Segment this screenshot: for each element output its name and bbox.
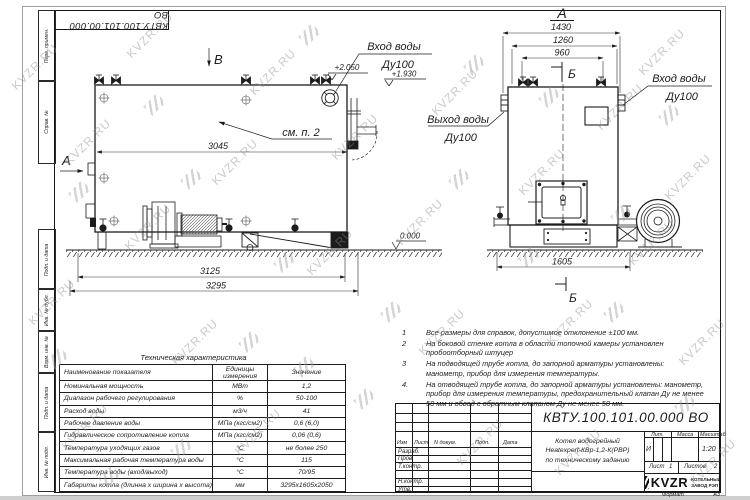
title-block: Изм Лист N докум. Подп. Дата Разраб. Про… [395, 403, 720, 492]
tech-table-header: Наименование показателя Единицы измерени… [60, 365, 346, 381]
note-item: 3 На подводящей трубе котла, до запорной… [402, 359, 704, 378]
grid-line [662, 437, 663, 461]
mass-label: Масса [677, 432, 693, 438]
grid-line [698, 431, 699, 461]
grid-line [678, 461, 679, 473]
sheets-value: 2 [714, 464, 717, 470]
grid-line [396, 486, 531, 487]
company-name: КОТЕЛЬНЫЙ ЗАВОД РЭП [691, 477, 721, 488]
tech-characteristics: Техническая характеристика Наименование … [59, 353, 328, 492]
grid-line [396, 413, 531, 414]
dim-1260: 1260 [553, 35, 573, 45]
company-logo: KVZR КОТЕЛЬНЫЙ ЗАВОД РЭП [645, 473, 721, 492]
grid-line [396, 455, 531, 456]
dim-1430: 1430 [551, 22, 571, 32]
inlet-nozzle-flange [322, 90, 338, 106]
pump-assembly [98, 202, 227, 249]
view-label-v: В [214, 52, 223, 67]
col-docnum: N докум. [434, 440, 456, 446]
sheet-value: 1 [669, 464, 672, 470]
grid-line [531, 471, 644, 472]
inlet-dn-right-view: Ду100 [664, 91, 699, 103]
dim-3295: 3295 [206, 281, 227, 291]
outlet-dn: Ду100 [443, 132, 478, 144]
scale-value: 1:20 [702, 446, 716, 453]
furnace-door [528, 181, 587, 224]
table-row: Расход водым3/ч41 [60, 405, 346, 417]
inspection-hatch [585, 107, 608, 125]
dim-3125: 3125 [200, 266, 221, 276]
tech-table: Наименование показателя Единицы измерени… [59, 364, 346, 492]
col-list: Лист [414, 440, 428, 446]
row-tkontr: Т.контр. [398, 464, 422, 470]
grid-line [498, 404, 499, 493]
row-nkontr: Н.контр. [398, 479, 423, 485]
table-row: Температура уходящих газов°Сне более 250 [60, 442, 346, 454]
row-razrab: Разраб. [398, 449, 420, 455]
inlet-label-right-view: Вход воды [652, 73, 705, 85]
skid-supports [242, 232, 348, 251]
grid-line [428, 404, 429, 493]
end-view [487, 77, 703, 257]
lit-value: И [646, 446, 651, 453]
elev-2050: +2.050 [335, 63, 360, 72]
notes-list: 1 Все размеры для справок, допустимое от… [402, 328, 704, 410]
kvzr-stripes-icon [645, 476, 649, 489]
kvzr-logo-text: KVZR [651, 475, 688, 490]
elev-1930: +1.930 [392, 70, 417, 79]
view-label-a-right: А [556, 5, 566, 21]
blower-duct [618, 206, 637, 241]
lit-label: Лит. [651, 432, 664, 438]
drawing-labels: 3045 3125 3295 В А см. п. 2 Вход воды Ду… [61, 5, 706, 305]
row-utv: Утв. [398, 487, 412, 493]
grid-line [470, 404, 471, 493]
scale-label: Масштаб [700, 432, 726, 438]
table-row: Температура воды (вход/выход)°С70/95 [60, 467, 346, 479]
grid-line [653, 437, 654, 461]
table-row: Номинальная мощностьМВт1,2 [60, 381, 346, 393]
section-label-a-left: А [61, 153, 71, 168]
col-izm: Изм [397, 440, 407, 446]
boiler-base [510, 225, 617, 247]
axis-label-b-top: Б [568, 67, 576, 81]
row-prov: Пров. [398, 456, 414, 462]
elev-0000: 0.000 [400, 232, 421, 241]
axis-label-b-bottom: Б [569, 291, 577, 305]
dim-3045: 3045 [208, 141, 229, 151]
drawing-sheet: Перв. примен. Справ. № Подп. и дата Инв.… [0, 0, 750, 500]
side-piping [347, 98, 377, 160]
sheet-label: Лист [649, 464, 664, 470]
tech-table-title: Техническая характеристика [59, 353, 328, 362]
note-item: 1 Все размеры для справок, допустимое от… [402, 328, 704, 337]
product-name: Котел водогрейный Heatexpert-КВр-1,2-К(Р… [531, 431, 644, 471]
table-row: Гидравлическое сопротивление котлаМПа (к… [60, 430, 346, 442]
note-ref-label: см. п. 2 [282, 127, 319, 139]
table-row: Максимальная рабочая температура воды°С1… [60, 454, 346, 466]
table-row: Диапазон рабочего регулирования%50-100 [60, 393, 346, 405]
outlet-label: Выход воды [427, 114, 489, 126]
inlet-label-left-view: Вход воды [367, 41, 420, 53]
sheets-label: Листов [684, 464, 706, 470]
col-podp: Подп. [475, 440, 490, 446]
grid-line [396, 470, 531, 471]
table-row: Габариты котла (длинна х ширина х высота… [60, 479, 346, 491]
doc-number: КВТУ.100.101.00.000 ВО [531, 404, 721, 431]
grid-line [644, 461, 721, 462]
table-row: Рабочее давление водыМПа (кгс/см2)0,6 (6… [60, 417, 346, 429]
dim-1605: 1605 [552, 257, 573, 267]
side-view [66, 75, 442, 257]
col-data: Дата [503, 440, 518, 446]
dim-960: 960 [554, 48, 569, 58]
blower-fan [637, 200, 683, 248]
grid-line [396, 422, 531, 423]
format-note: Формат А3 [662, 492, 720, 498]
grid-line [671, 431, 672, 461]
note-item: 2 На боковой стенке котла в области топо… [402, 339, 704, 358]
